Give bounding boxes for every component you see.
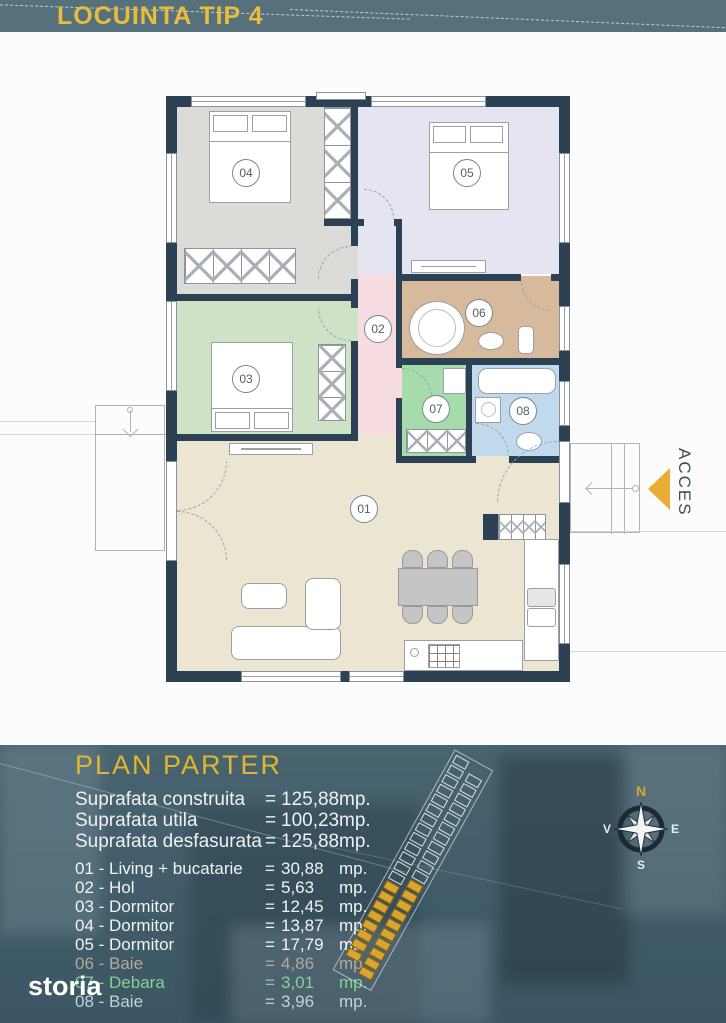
wall-segment (396, 226, 402, 368)
summary-label: Suprafata desfasurata (75, 831, 265, 852)
legend-value: 4,86 (281, 954, 339, 973)
legend-label: 06 - Baie (75, 954, 265, 973)
summary-row: Suprafata utila = 100,23 mp. (75, 810, 371, 831)
window-room04-top (191, 96, 306, 107)
legend-label: 05 - Dormitor (75, 935, 265, 954)
room-legend-list: 01 - Living + bucatarie = 30,88 mp. 02 -… (75, 859, 367, 1011)
wardrobe-room03 (318, 344, 346, 421)
wall-segment (551, 274, 559, 281)
room-label-03: 03 (232, 365, 260, 393)
compass-west-label: V (603, 822, 611, 836)
wardrobe-room04 (184, 248, 296, 284)
room-label-04: 04 (232, 159, 260, 187)
access-arrow-icon (648, 468, 670, 510)
legend-label: 02 - Hol (75, 878, 265, 897)
kitchen-sink-a (527, 588, 556, 607)
wall-segment (177, 434, 351, 441)
window-room08-right (559, 381, 570, 426)
room-label-05: 05 (453, 159, 481, 187)
legend-value: 5,63 (281, 878, 339, 897)
storage-pantry (406, 429, 466, 453)
chair (402, 550, 423, 568)
plan-parter-title: PLAN PARTER (75, 750, 282, 781)
summary-unit: mp. (339, 810, 371, 831)
kitchen-fixture (410, 648, 419, 657)
compass-south-label: S (637, 858, 645, 872)
porch-marker (632, 485, 639, 492)
wall-segment (402, 358, 559, 365)
stove (428, 644, 460, 668)
legend-row: 06 - Baie = 4,86 mp. (75, 954, 367, 973)
sofa-vertical (305, 578, 341, 630)
legend-value: 13,87 (281, 916, 339, 935)
header-dashed-line (290, 9, 726, 29)
legend-value: 17,79 (281, 935, 339, 954)
porch-step-line (611, 444, 612, 534)
summary-value: 100,23 (281, 810, 339, 831)
legend-value: 3,01 (281, 973, 339, 992)
sink (478, 332, 504, 350)
dining-table (398, 568, 478, 606)
summary-label: Suprafata utila (75, 810, 265, 831)
window-room03-left (166, 301, 177, 391)
storia-logo: storia (28, 971, 102, 1002)
wall-segment (394, 219, 402, 226)
wall-segment (177, 294, 351, 301)
corner-tub-inner (418, 309, 456, 347)
summary-value: 125,88 (281, 789, 339, 810)
page-title: LOCUINTA TIP 4 (57, 2, 264, 31)
kitchen-sink-b (527, 608, 556, 627)
terrace-outline (95, 405, 165, 551)
summary-value: 125,88 (281, 831, 339, 852)
dresser-line (421, 266, 476, 267)
closet-room04 (324, 107, 351, 219)
window-kitchen-right (559, 564, 570, 644)
legend-value: 12,45 (281, 897, 339, 916)
equals-sign: = (265, 897, 281, 916)
window-room05-top (371, 96, 486, 107)
kitchen-closet (498, 514, 546, 540)
legend-row: 05 - Dormitor = 17,79 mp. (75, 935, 367, 954)
sofa-horizontal (231, 626, 341, 660)
equals-sign: = (265, 954, 281, 973)
legend-unit: mp. (339, 878, 367, 897)
chair (452, 550, 473, 568)
legend-unit: mp. (339, 859, 367, 878)
compass-east-label: E (671, 822, 679, 836)
equals-sign: = (265, 878, 281, 897)
pillow (252, 115, 287, 132)
access-label: ACCES (674, 448, 694, 548)
window-living-bottom (241, 671, 341, 682)
summary-list: Suprafata construita = 125,88 mp. Supraf… (75, 789, 371, 852)
equals-sign: = (265, 973, 281, 992)
floor-plan: 01 02 03 04 05 06 07 08 ACCES (166, 96, 570, 682)
window-room04-left (166, 153, 177, 243)
equals-sign: = (265, 810, 281, 831)
window-room05-right (559, 153, 570, 243)
legend-label: 03 - Dormitor (75, 897, 265, 916)
equals-sign: = (265, 916, 281, 935)
legend-label: 04 - Dormitor (75, 916, 265, 935)
equals-sign: = (265, 789, 281, 810)
legend-row: 03 - Dormitor = 12,45 mp. (75, 897, 367, 916)
extension-line (570, 531, 726, 532)
legend-label: 01 - Living + bucatarie (75, 859, 265, 878)
bed-line (212, 408, 292, 409)
summary-unit: mp. (339, 831, 371, 852)
coffee-table (241, 583, 287, 609)
legend-row: 04 - Dormitor = 13,87 mp. (75, 916, 367, 935)
wall-segment (466, 365, 472, 456)
wall-stub-kitchen (483, 514, 498, 540)
french-door-living (166, 461, 177, 561)
wall-segment (351, 279, 358, 308)
room-label-01: 01 (350, 495, 378, 523)
wall-segment (396, 398, 402, 463)
pillow (254, 412, 289, 429)
room-label-08: 08 (509, 397, 537, 425)
window-room06-right (559, 306, 570, 351)
terrace-step-line (96, 434, 166, 435)
chair (427, 550, 448, 568)
equals-sign: = (265, 935, 281, 954)
shelf-pantry (443, 368, 466, 394)
wall-segment (351, 341, 358, 441)
legend-row: 07 - Debara = 3,01 mp. (75, 973, 367, 992)
extension-line (570, 651, 726, 652)
compass-north-label: N (636, 783, 646, 799)
bed-line (210, 141, 290, 142)
legend-unit: mp. (339, 992, 367, 1011)
summary-row: Suprafata desfasurata = 125,88 mp. (75, 831, 371, 852)
room-label-07: 07 (422, 395, 450, 423)
legend-row: 08 - Baie = 3,96 mp. (75, 992, 367, 1011)
legend-value: 30,88 (281, 859, 339, 878)
window-living-bottom2 (349, 671, 404, 682)
room-label-02: 02 (364, 315, 392, 343)
entrance-porch (570, 443, 640, 533)
wall-segment (324, 219, 364, 226)
equals-sign: = (265, 992, 281, 1011)
extension-line (0, 434, 95, 435)
legend-row: 02 - Hol = 5,63 mp. (75, 878, 367, 897)
details-panel: PLAN PARTER Suprafata construita = 125,8… (0, 745, 726, 1023)
floor-plan-sheet: LOCUINTA TIP 4 (0, 0, 726, 1023)
summary-unit: mp. (339, 789, 371, 810)
wall-segment (402, 456, 476, 463)
toilet (518, 326, 534, 354)
porch-step-line (624, 444, 625, 534)
room-label-06: 06 (465, 299, 493, 327)
kitchen-counter-bottom (404, 640, 523, 671)
pillow (215, 412, 250, 429)
legend-label: 07 - Debara (75, 973, 265, 992)
pillow (470, 126, 503, 143)
summary-row: Suprafata construita = 125,88 mp. (75, 789, 371, 810)
wall-segment (402, 274, 521, 281)
bathtub (478, 368, 556, 394)
summary-label: Suprafata construita (75, 789, 265, 810)
compass-rose: N E S V (596, 782, 686, 872)
header-band: LOCUINTA TIP 4 (0, 0, 726, 32)
entrance-door-opening (559, 441, 570, 503)
bed-line (430, 152, 508, 153)
legend-value: 3,96 (281, 992, 339, 1011)
porch-arrow-head (585, 482, 598, 495)
pillow (213, 115, 248, 132)
extension-line (0, 421, 95, 422)
compass-star-main (614, 802, 668, 856)
pillow (433, 126, 466, 143)
legend-row: 01 - Living + bucatarie = 30,88 mp. (75, 859, 367, 878)
tv (241, 448, 301, 450)
legend-label: 08 - Baie (75, 992, 265, 1011)
equals-sign: = (265, 831, 281, 852)
washing-machine-door (481, 402, 496, 417)
equals-sign: = (265, 859, 281, 878)
vent-top (316, 92, 366, 100)
